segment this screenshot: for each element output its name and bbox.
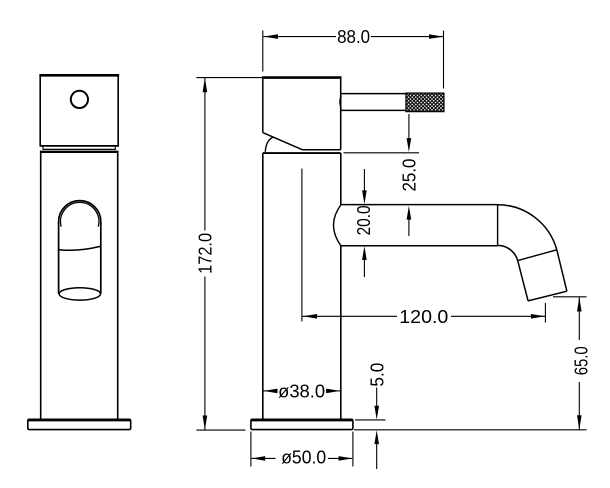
svg-text:5.0: 5.0 (367, 363, 387, 387)
svg-text:ø50.0: ø50.0 (281, 447, 326, 467)
svg-text:25.0: 25.0 (400, 159, 420, 192)
svg-text:88.0: 88.0 (337, 27, 370, 47)
svg-text:120.0: 120.0 (399, 307, 448, 327)
svg-text:ø38.0: ø38.0 (278, 382, 325, 402)
svg-text:20.0: 20.0 (354, 205, 374, 235)
svg-text:172.0: 172.0 (196, 233, 216, 274)
svg-text:65.0: 65.0 (572, 346, 592, 375)
